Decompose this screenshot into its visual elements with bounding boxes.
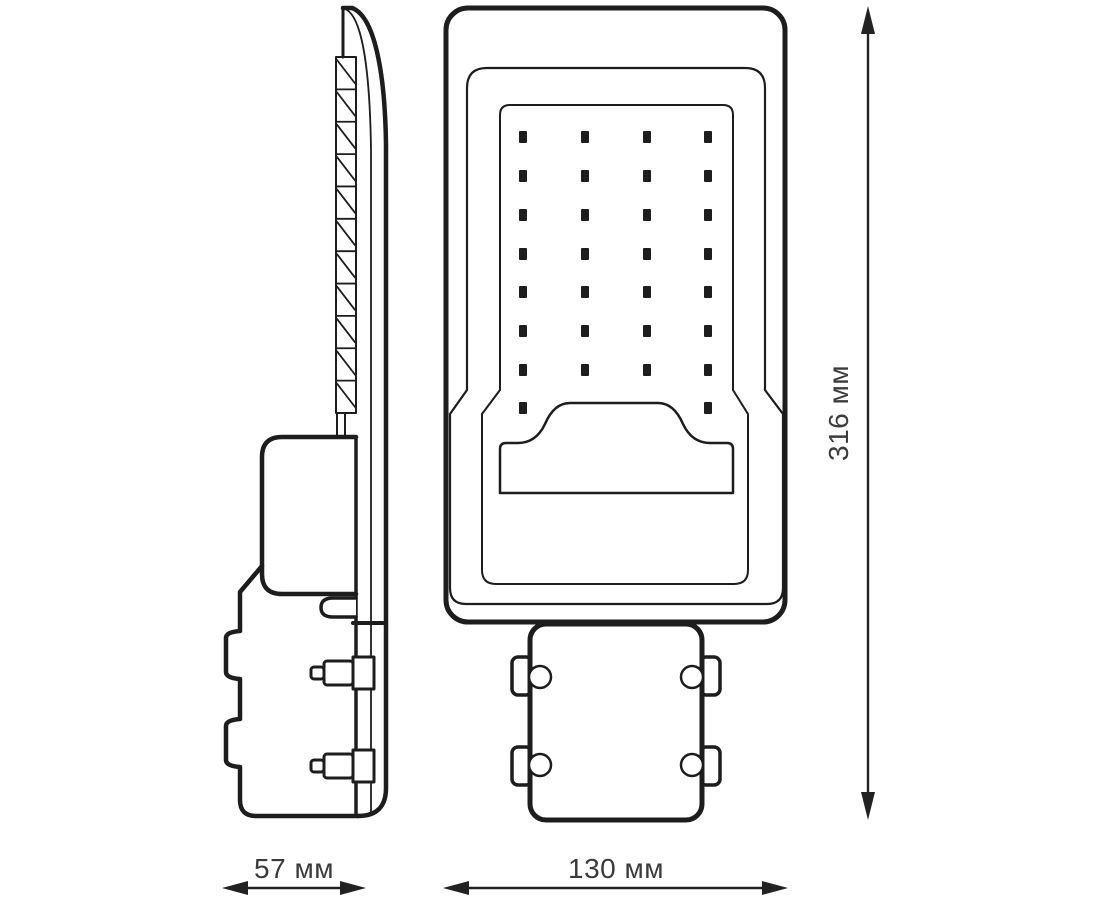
led-dot [704,248,712,260]
mount-tube [530,624,702,820]
bolt-flange [353,657,374,689]
fin-blade [337,157,355,180]
led-dot [704,170,712,182]
front-mount-arm [512,624,720,820]
front-view [446,8,785,820]
arrowhead-right-icon [762,881,788,895]
led-dot [581,364,589,376]
fin-blade [337,287,355,310]
fin-blade [337,319,355,342]
fin-blade [337,351,355,374]
side-latch-tab [321,598,356,617]
front-width-dim-label: 130 мм [568,853,664,884]
mount-hole [681,666,703,688]
side-width-dim-label: 57 мм [254,853,334,884]
heatsink-outline [336,57,356,413]
bolt-body [324,661,353,685]
led-dot [581,248,589,260]
arrowhead-left-icon [443,881,469,895]
bolt-body [324,754,353,778]
led-dot [519,364,527,376]
fin-blade [337,92,355,115]
height-dim-label: 316 мм [823,365,854,461]
led-dot [519,286,527,298]
bolt-tip [311,667,324,679]
heatsink-fin-strip [336,57,356,437]
mount-hole [529,666,551,688]
side-bolt-lower [311,750,374,782]
front-lower-panel-hump [500,403,733,493]
fin-blade [337,125,355,148]
dimension-side-width: 57 мм [222,853,366,895]
led-dot [643,131,651,143]
led-dot [581,170,589,182]
street-light-drawing: 316 мм 57 мм 130 мм [0,0,1100,900]
led-dot [581,325,589,337]
arrowhead-up-icon [861,6,875,34]
led-dot [643,364,651,376]
led-dot [643,286,651,298]
led-dot [519,209,527,221]
led-dot [643,248,651,260]
led-dot [643,325,651,337]
led-dot [519,325,527,337]
led-dot [643,170,651,182]
led-dot [704,364,712,376]
led-dot [581,286,589,298]
heatsink-fins [336,60,356,407]
mount-hole [681,754,703,776]
mount-hole [529,754,551,776]
led-dot [519,402,527,414]
dimension-height: 316 мм [823,6,875,820]
fin-blade [337,60,355,83]
bolt-flange [353,750,374,782]
led-dot [581,131,589,143]
fin-blade [337,254,355,277]
technical-drawing-page: 316 мм 57 мм 130 мм [0,0,1100,900]
arrowhead-left-icon [222,881,248,895]
led-dot [519,131,527,143]
fin-blade [337,384,355,407]
led-dot-grid [519,131,712,414]
led-dot [704,209,712,221]
side-bolt-upper [311,657,374,689]
led-dot [643,209,651,221]
fin-blade [337,189,355,212]
fin-blade [337,222,355,245]
led-dot [704,286,712,298]
bolt-tip [311,760,324,772]
arrowhead-down-icon [861,792,875,820]
front-outer-shell [446,8,785,622]
side-view [226,8,386,816]
arrowhead-right-icon [340,881,366,895]
led-dot [519,248,527,260]
dimension-front-width: 130 мм [443,853,788,895]
led-dot [704,325,712,337]
led-dot [704,131,712,143]
led-dot [704,402,712,414]
driver-housing [262,437,356,594]
led-dot [581,209,589,221]
led-dot [519,170,527,182]
